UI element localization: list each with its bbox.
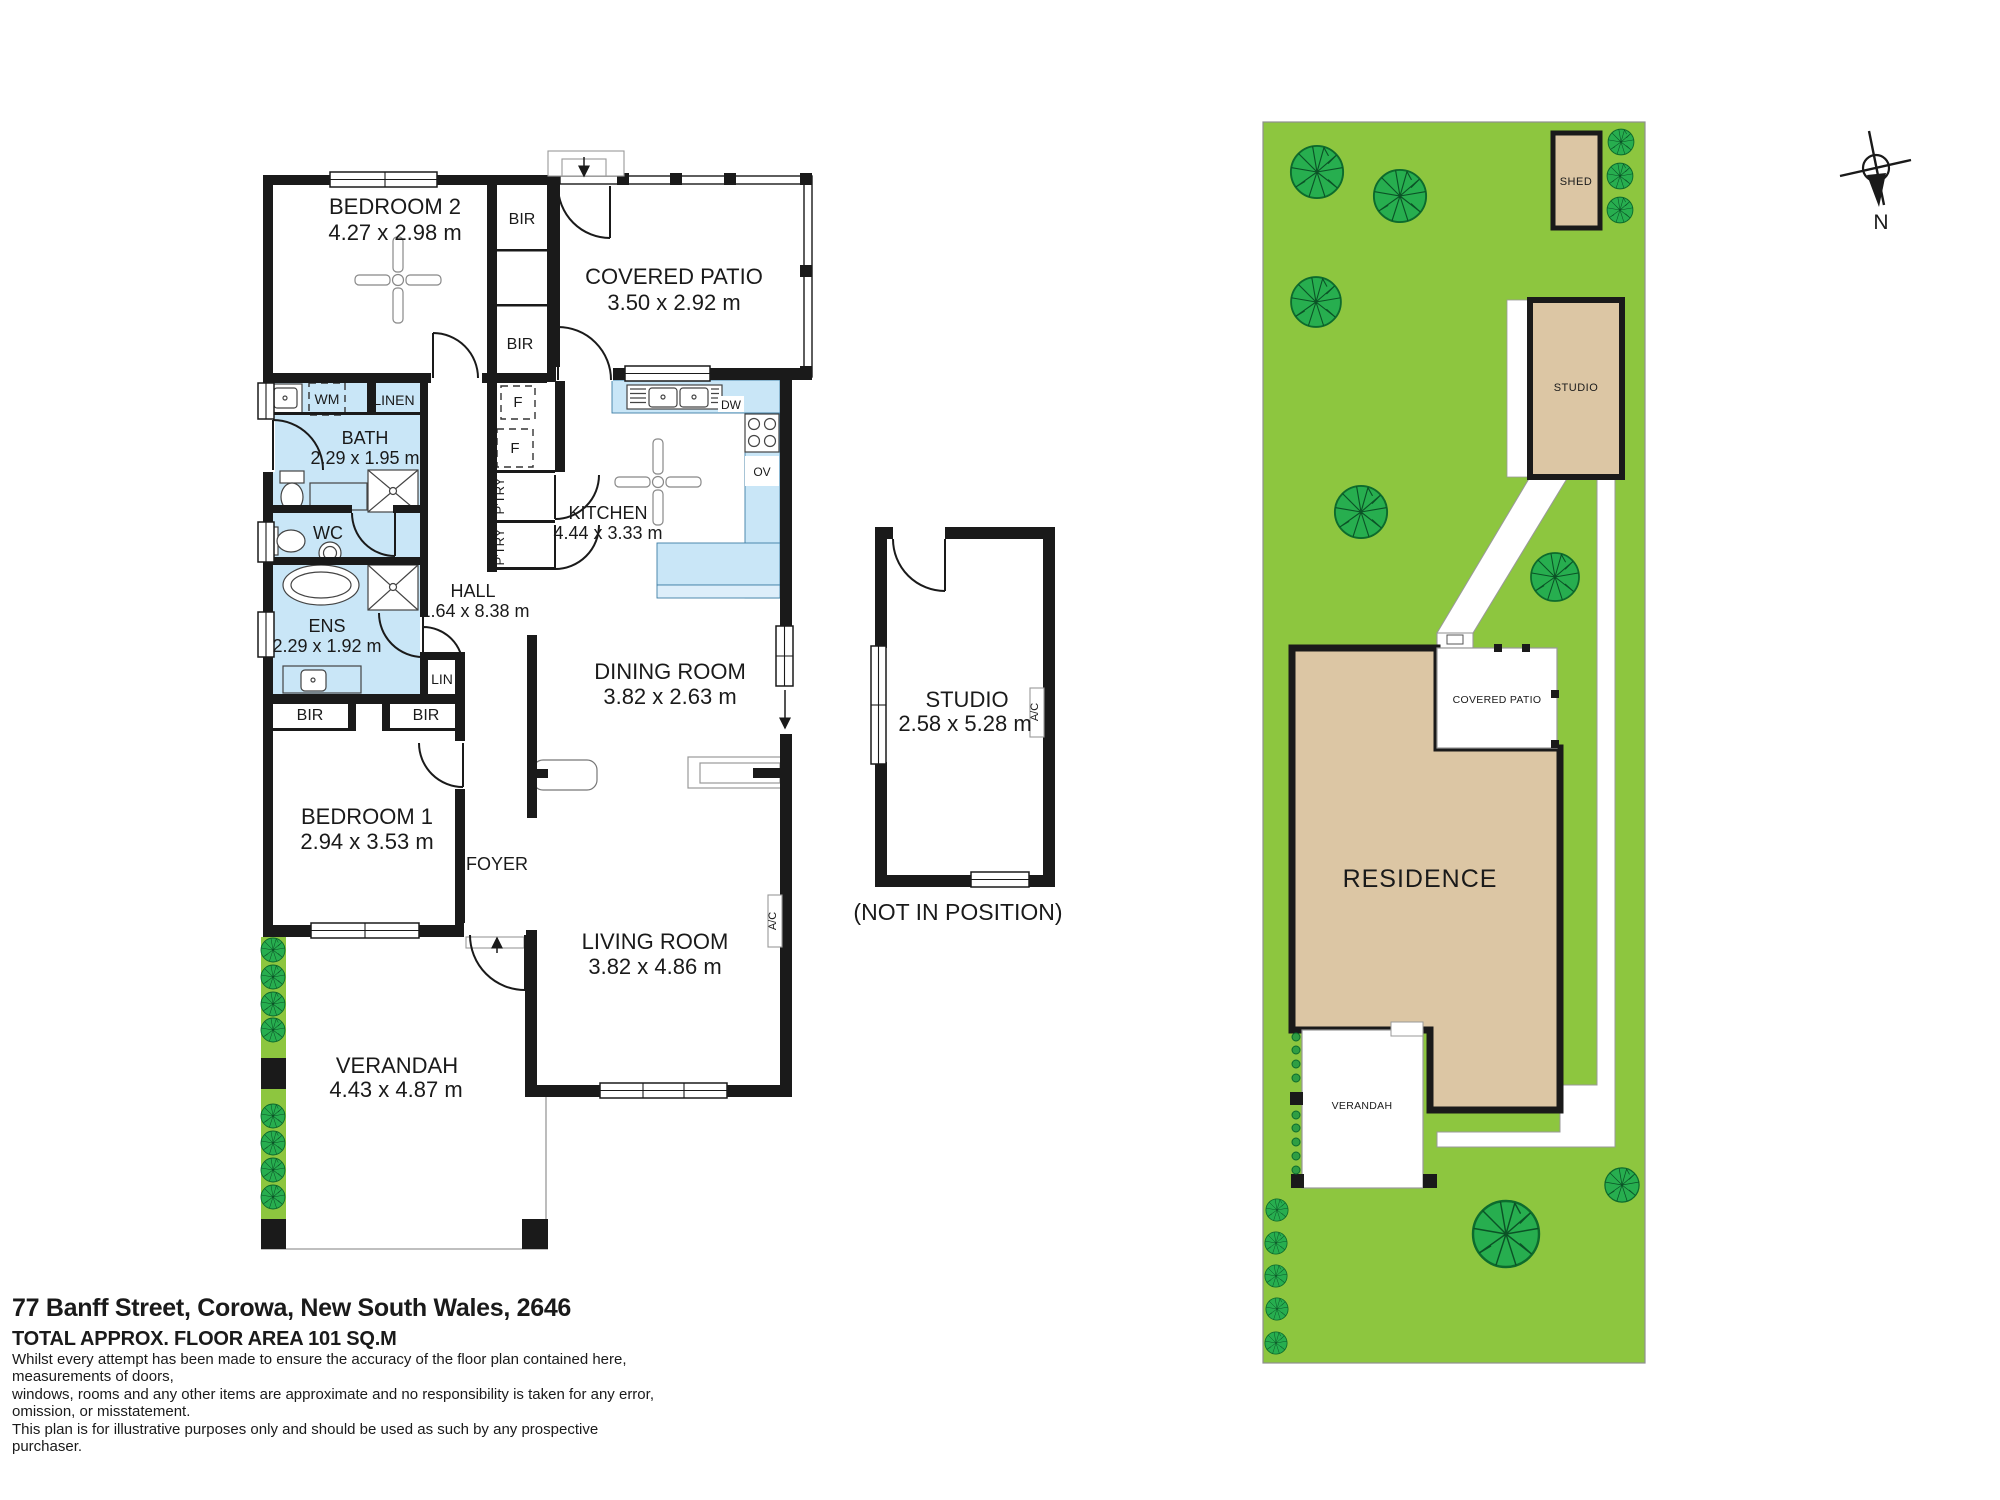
bush-icon [1266,1199,1288,1221]
studio-label: STUDIO [925,687,1008,712]
bush-icon [261,1131,285,1155]
tree-icon [1374,170,1426,222]
dw-label: DW [721,398,742,412]
sink-icon [627,385,722,409]
hall-dims: 1.64 x 8.38 m [420,601,529,621]
shower-icon [368,565,418,610]
bush-icon [261,1018,285,1042]
disclaimer-line-2: windows, rooms and any other items are a… [12,1386,672,1421]
compass-north-label: N [1873,211,1888,234]
verandah-dims: 4.43 x 4.87 m [329,1077,462,1102]
bush-icon [1265,1265,1287,1287]
disclaimer-line-1: Whilst every attempt has been made to en… [12,1351,672,1386]
site-plan: SHED STUDIO COVERED PATIO RESIDENCE VERA… [1263,122,1645,1363]
bush-icon [261,1158,285,1182]
ensuite-label: ENS [308,616,345,636]
tree-icon [1473,1201,1539,1267]
tree-icon [1531,553,1579,601]
bedroom2-dims: 4.27 x 2.98 m [328,220,461,245]
hall-label: HALL [450,581,495,601]
bush-icon [261,965,285,989]
floor-area-total: TOTAL APPROX. FLOOR AREA 101 SQ.M [12,1328,672,1351]
bir-label: BIR [509,211,536,228]
bath-label: BATH [342,428,389,448]
studio-dims: 2.58 x 5.28 m [898,711,1031,736]
bush-icon [261,992,285,1016]
bath-dims: 2.29 x 1.95 m [310,448,419,468]
room-labels: BEDROOM 2 4.27 x 2.98 m COVERED PATIO 3.… [272,194,762,1102]
linen-label: LINEN [373,392,414,408]
ac-label: A/C [767,912,779,930]
pantry-label: P'TRY [492,477,507,514]
bush-icon [1265,1232,1287,1254]
ov-label: OV [753,465,770,479]
pantry-label: P'TRY [492,528,507,565]
site-residence-label: RESIDENCE [1343,865,1498,893]
living-dims: 3.82 x 4.86 m [588,954,721,979]
stove-icon [745,414,779,452]
site-door-mark [1447,635,1463,644]
bush-icon [1608,129,1634,155]
fridge-label: F [510,440,519,457]
site-verandah-label: VERANDAH [1332,1100,1393,1112]
kitchen-label: KITCHEN [568,503,647,523]
bedroom2-label: BEDROOM 2 [329,194,461,219]
footer: 77 Banff Street, Corowa, New South Wales… [12,1294,672,1455]
floor-plan-canvas: SHED STUDIO COVERED PATIO RESIDENCE VERA… [0,0,2000,1500]
bush-icon [1265,1332,1287,1354]
bush-icon [261,938,285,962]
verandah-label: VERANDAH [336,1053,458,1078]
door-patio [558,186,610,238]
site-studio-strip [1507,300,1530,477]
bush-icon [1607,163,1633,189]
compass: N [1840,131,1911,234]
bush-icon [261,1104,285,1128]
tree-icon [1291,277,1341,327]
covered-patio-label: COVERED PATIO [585,264,763,289]
ensuite-dims: 2.29 x 1.92 m [272,636,381,656]
bush-icon [1607,197,1633,223]
studio-note: (NOT IN POSITION) [853,899,1062,925]
foyer-label: FOYER [466,854,528,874]
entry-alcove [548,151,624,176]
kitchen-counters [612,380,780,598]
bush-icon [261,1185,285,1209]
bir-label: BIR [507,336,534,353]
bathtub-icon [283,565,359,605]
site-studio-label: STUDIO [1554,382,1599,394]
dining-label: DINING ROOM [594,659,746,684]
kitchen-dims: 4.44 x 3.33 m [553,523,662,543]
living-fixtures [533,757,792,790]
studio-windows [871,646,1029,887]
floor-plan-page: SHED STUDIO COVERED PATIO RESIDENCE VERA… [0,0,2000,1500]
bedroom1-label: BEDROOM 1 [301,804,433,829]
lin-label: LIN [431,671,453,687]
site-covered-patio-label: COVERED PATIO [1453,694,1542,706]
tree-icon [1291,146,1343,198]
property-address: 77 Banff Street, Corowa, New South Wales… [12,1294,672,1323]
main-floor-plan: BEDROOM 2 4.27 x 2.98 m COVERED PATIO 3.… [258,151,812,1249]
fridge-label: F [513,394,522,411]
wc-label: WC [313,523,343,543]
tree-icon [1335,486,1387,538]
disclaimer-line-3: This plan is for illustrative purposes o… [12,1421,672,1456]
front-threshold [466,937,524,948]
bir-label: BIR [413,707,440,724]
studio-plan: A/C STUDIO 2.58 x 5.28 m (NOT IN POSITIO… [853,527,1062,925]
tree-icon [1605,1168,1639,1202]
site-shed-label: SHED [1560,176,1593,188]
door-studio [893,539,945,591]
bedroom1-dims: 2.94 x 3.53 m [300,829,433,854]
living-label: LIVING ROOM [582,929,729,954]
toilet-icon [280,471,304,483]
bir-label: BIR [297,707,324,724]
dining-dims: 3.82 x 2.63 m [603,684,736,709]
wm-label: WM [315,391,340,407]
covered-patio-dims: 3.50 x 2.92 m [607,290,740,315]
bush-icon [1266,1298,1288,1320]
ceiling-fan-icon [355,237,441,323]
